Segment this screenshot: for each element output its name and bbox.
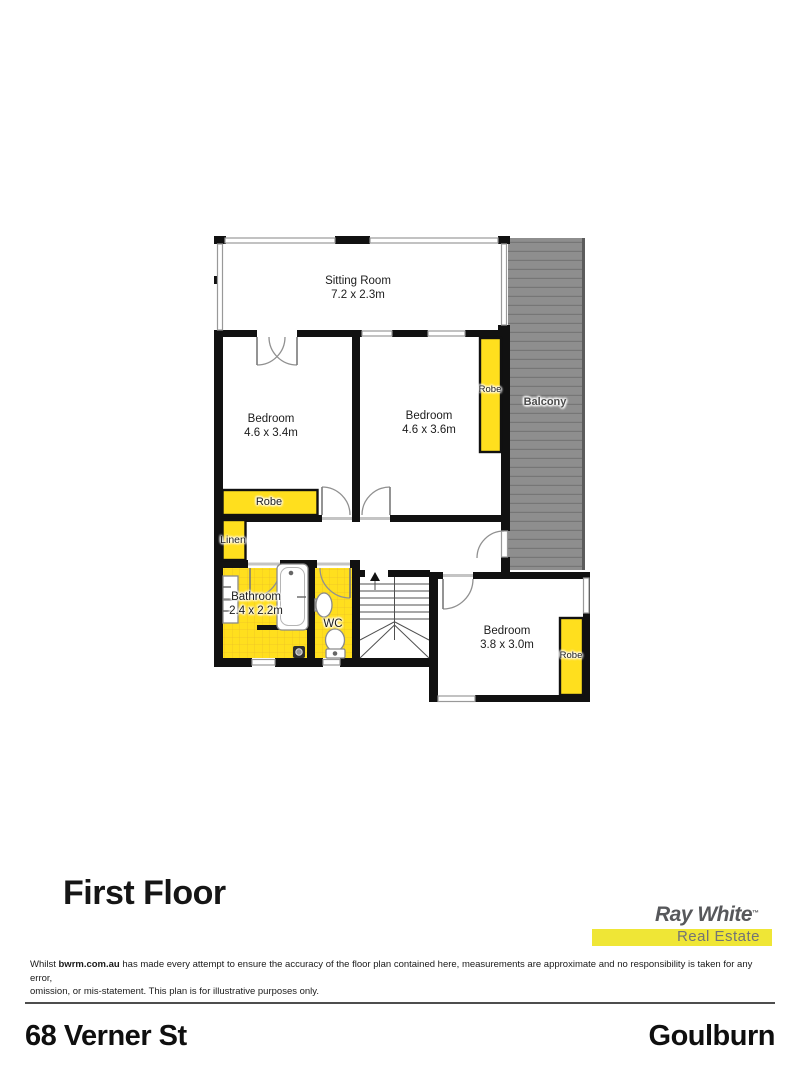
door-balcony (477, 531, 504, 558)
toilet (326, 629, 345, 651)
floorplan-page: Sitting Room 7.2 x 2.3m Bedroom 4.6 x 3.… (0, 0, 800, 1066)
suburb: Goulburn (649, 1020, 775, 1053)
stairs-up-arrow (370, 572, 380, 581)
label-balcony: Balcony (524, 395, 567, 409)
door-bedroom1 (322, 487, 350, 515)
label-bedroom1: Bedroom 4.6 x 3.4m (244, 412, 298, 440)
wc-basin (316, 593, 332, 617)
label-linen: Linen (220, 533, 246, 547)
footer: 68 Verner St Goulburn (25, 1020, 775, 1053)
floor-plan-drawing (210, 228, 594, 712)
ray-white-tagline-bar: Real Estate (592, 929, 772, 946)
label-bathroom: Bathroom 2.4 x 2.2m (229, 590, 283, 618)
label-robe-bedroom1: Robe (256, 495, 282, 509)
label-robe-bedroom2: Robe (479, 383, 502, 397)
ray-white-wordmark: Ray White™ (592, 903, 772, 927)
label-robe-bedroom3: Robe (560, 649, 583, 663)
door-bedroom2 (362, 487, 390, 515)
label-sitting-room: Sitting Room 7.2 x 2.3m (325, 274, 391, 302)
footer-divider (25, 1002, 775, 1004)
label-wc: WC (323, 617, 342, 631)
disclaimer-text: Whilst bwrm.com.au has made every attemp… (30, 958, 770, 999)
staircase (360, 572, 429, 658)
ray-white-logo: Ray White™ Real Estate (592, 903, 772, 946)
door-bedroom3 (443, 579, 473, 609)
double-door-sitting-bedroom1 (257, 337, 297, 365)
label-bedroom3: Bedroom 3.8 x 3.0m (480, 624, 534, 652)
street-address: 68 Verner St (25, 1020, 187, 1053)
label-bedroom2: Bedroom 4.6 x 3.6m (402, 409, 456, 437)
page-title: First Floor (63, 874, 226, 913)
trademark-symbol: ™ (752, 910, 759, 917)
